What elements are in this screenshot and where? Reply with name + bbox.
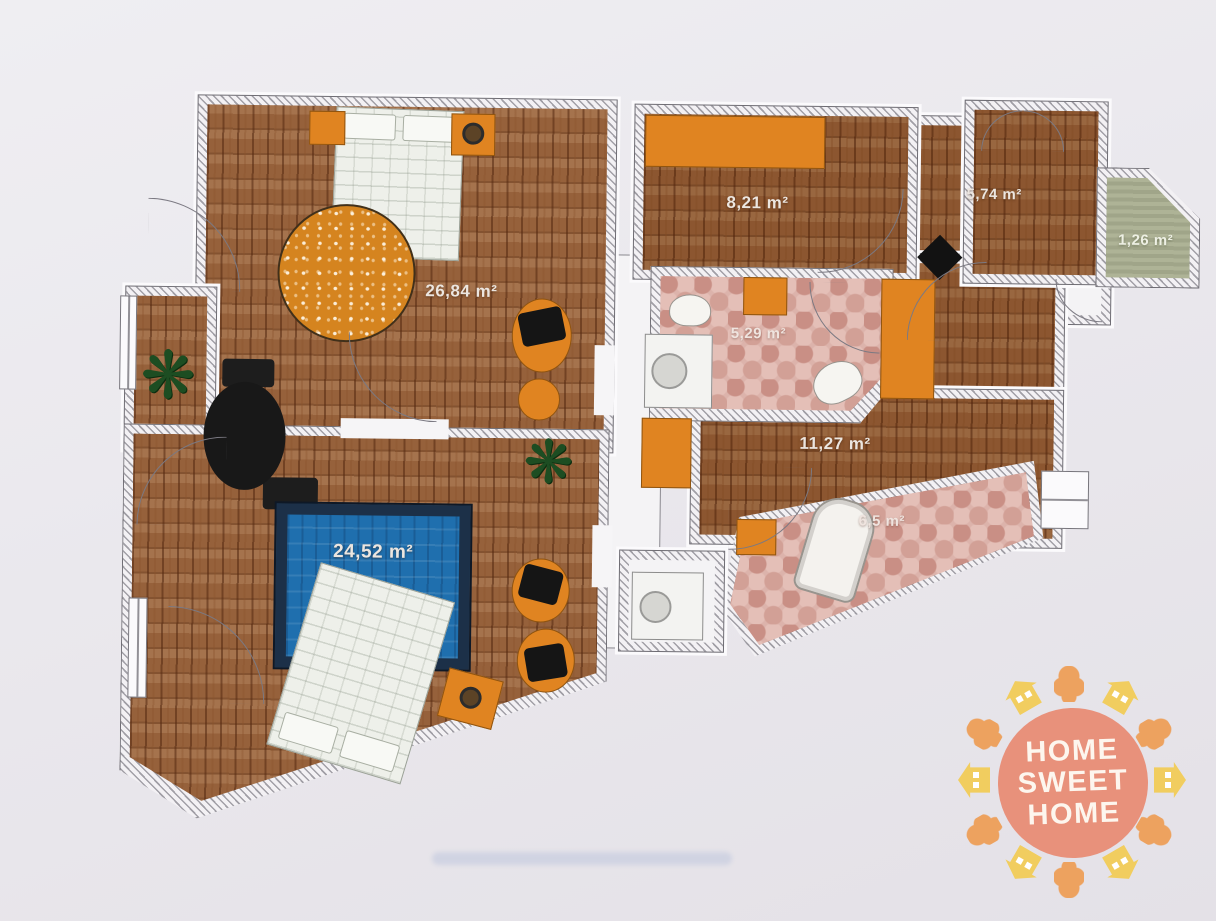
lamp-icon <box>457 684 484 711</box>
cabinet <box>641 418 692 489</box>
side-table <box>451 113 496 156</box>
logo-house-icon <box>999 672 1046 718</box>
shower-unit <box>631 572 704 641</box>
room-balcony <box>1095 167 1200 288</box>
logo-tree-icon <box>961 809 1007 853</box>
logo-tree-icon <box>1054 666 1084 702</box>
room-label-bedroom: 24,52 m² <box>333 541 413 564</box>
window <box>119 295 137 389</box>
home-sweet-home-logo: HOME SWEET HOME <box>958 666 1188 896</box>
watermark <box>432 852 732 865</box>
room-label-wc: 6,5 m² <box>858 512 905 530</box>
window <box>1040 471 1089 530</box>
logo-tree-icon <box>1054 862 1084 898</box>
toilet <box>669 294 711 327</box>
room-label-balcony: 1,26 m² <box>1118 232 1173 250</box>
logo-house-icon <box>1154 762 1186 798</box>
washing-machine <box>644 334 713 409</box>
porthole-icon <box>639 591 671 623</box>
chair-seat <box>517 563 564 606</box>
chair-seat <box>523 643 568 683</box>
room-label-living: 26,84 m² <box>425 281 497 302</box>
nightstand <box>309 111 345 145</box>
room-label-small-a: 8,21 m² <box>726 193 788 214</box>
bathroom-cabinet <box>743 277 787 316</box>
lamp-icon <box>462 123 484 145</box>
plant-icon: ❋ <box>140 342 196 409</box>
logo-text-line: HOME <box>1027 797 1121 832</box>
chair-seat <box>517 306 567 348</box>
logo-house-icon <box>1097 672 1144 718</box>
pillow <box>339 730 401 773</box>
pillow <box>402 115 455 143</box>
logo-tree-icon <box>961 711 1007 755</box>
room-label-hallway: 11,27 m² <box>799 434 870 455</box>
plant-icon: ❋ <box>523 432 574 493</box>
window <box>127 598 147 698</box>
pillow <box>278 711 340 754</box>
balcony-floor <box>1106 177 1191 278</box>
logo-text-line: SWEET <box>1017 765 1129 800</box>
door-opening <box>592 525 613 587</box>
wardrobe <box>645 115 826 169</box>
logo-badge: HOME SWEET HOME <box>995 705 1150 860</box>
porthole-icon <box>651 353 687 389</box>
logo-house-icon <box>958 762 990 798</box>
pillow <box>343 113 396 141</box>
door-opening <box>594 345 615 415</box>
room-label-bathroom: 5,29 m² <box>731 325 786 343</box>
logo-text-line: HOME <box>1025 734 1119 769</box>
room-label-small-b: 5,74 m² <box>966 186 1021 204</box>
